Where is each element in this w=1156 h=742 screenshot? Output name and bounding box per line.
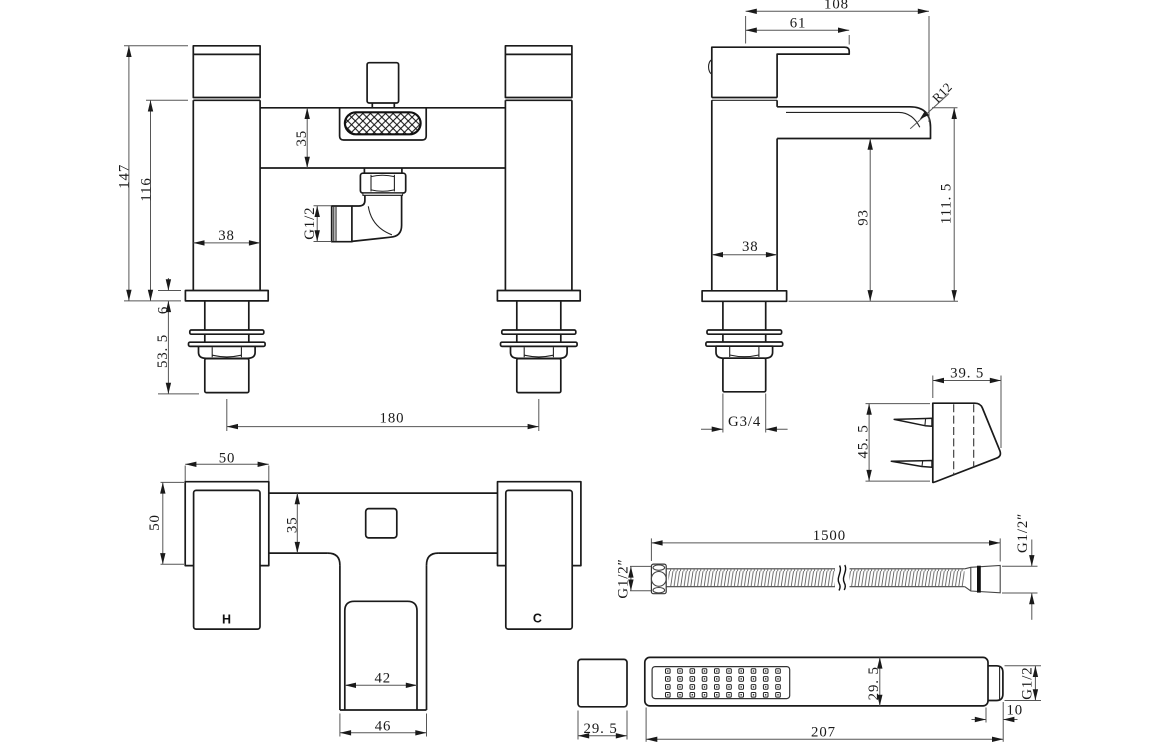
svg-text:R12: R12 bbox=[929, 80, 955, 106]
svg-text:G1/2″: G1/2″ bbox=[1015, 513, 1031, 553]
svg-text:116: 116 bbox=[139, 177, 155, 201]
svg-text:29. 5: 29. 5 bbox=[866, 666, 882, 700]
svg-text:38: 38 bbox=[218, 228, 235, 244]
svg-text:45. 5: 45. 5 bbox=[856, 424, 872, 458]
svg-text:180: 180 bbox=[380, 410, 405, 426]
svg-text:46: 46 bbox=[375, 718, 392, 734]
svg-text:6: 6 bbox=[156, 306, 172, 314]
svg-text:G3/4: G3/4 bbox=[728, 414, 761, 430]
svg-text:1500: 1500 bbox=[813, 528, 846, 544]
svg-text:50: 50 bbox=[219, 451, 236, 467]
svg-text:50: 50 bbox=[147, 514, 163, 531]
svg-text:C: C bbox=[533, 612, 543, 626]
svg-text:42: 42 bbox=[374, 671, 391, 687]
svg-text:38: 38 bbox=[742, 239, 759, 255]
svg-text:G1/2″: G1/2″ bbox=[616, 558, 632, 598]
svg-text:29. 5: 29. 5 bbox=[584, 721, 618, 737]
svg-text:61: 61 bbox=[790, 16, 807, 32]
svg-text:H: H bbox=[222, 612, 232, 626]
svg-text:10: 10 bbox=[1006, 703, 1023, 719]
svg-text:53. 5: 53. 5 bbox=[155, 334, 171, 368]
svg-text:35: 35 bbox=[284, 516, 300, 533]
svg-text:35: 35 bbox=[294, 130, 310, 147]
svg-text:G1/2: G1/2 bbox=[302, 207, 318, 240]
svg-text:G1/2: G1/2 bbox=[1020, 666, 1036, 699]
svg-text:207: 207 bbox=[811, 725, 836, 741]
svg-text:147: 147 bbox=[117, 164, 133, 189]
svg-text:111. 5: 111. 5 bbox=[938, 183, 954, 224]
svg-text:39. 5: 39. 5 bbox=[950, 366, 984, 382]
svg-text:93: 93 bbox=[856, 209, 872, 226]
svg-text:108: 108 bbox=[824, 0, 849, 13]
